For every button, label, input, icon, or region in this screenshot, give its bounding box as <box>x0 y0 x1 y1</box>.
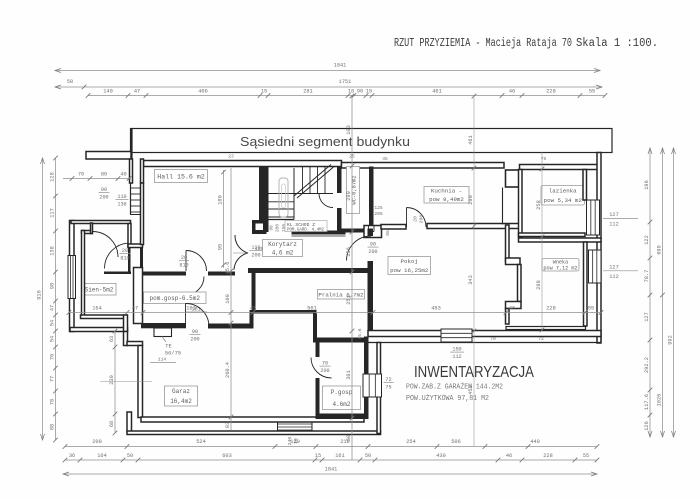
svg-text:45.6: 45.6 <box>225 262 231 275</box>
svg-text:127: 127 <box>644 312 650 322</box>
svg-text:916: 916 <box>37 290 43 300</box>
svg-text:1841: 1841 <box>334 63 347 69</box>
svg-text:699: 699 <box>657 245 663 255</box>
svg-text:55: 55 <box>583 453 589 459</box>
svg-text:18: 18 <box>348 89 354 95</box>
svg-text:810: 810 <box>179 262 188 268</box>
svg-text:75: 75 <box>541 156 547 162</box>
svg-text:78: 78 <box>50 399 56 405</box>
svg-text:343: 343 <box>468 275 474 285</box>
svg-text:15: 15 <box>366 89 372 95</box>
svg-text:127: 127 <box>609 212 619 218</box>
svg-text:506: 506 <box>451 439 461 445</box>
svg-text:Korytarz: Korytarz <box>268 241 297 248</box>
svg-text:164: 164 <box>97 453 107 459</box>
svg-text:430: 430 <box>436 453 446 459</box>
svg-text:pow 9,49m2: pow 9,49m2 <box>429 196 464 203</box>
svg-text:pow 7,12 m2: pow 7,12 m2 <box>543 266 577 272</box>
svg-text:228: 228 <box>546 306 556 312</box>
svg-text:90: 90 <box>101 187 107 193</box>
svg-text:46: 46 <box>509 89 515 95</box>
svg-text:15: 15 <box>315 453 321 459</box>
svg-text:461: 461 <box>432 89 442 95</box>
svg-text:78.7: 78.7 <box>644 270 650 283</box>
svg-text:Wneka: Wneka <box>553 260 569 266</box>
svg-text:WC-0,87m2: WC-0,87m2 <box>352 175 358 204</box>
svg-text:992: 992 <box>668 335 674 345</box>
svg-text:50: 50 <box>67 79 73 85</box>
svg-text:15: 15 <box>293 438 299 444</box>
svg-text:254: 254 <box>406 439 416 445</box>
svg-text:453: 453 <box>431 306 441 312</box>
svg-text:1026: 1026 <box>657 394 663 407</box>
svg-text:Pokoj: Pokoj <box>401 258 418 265</box>
svg-text:RZUT PRZYZIEMIA - Macieja Rata: RZUT PRZYZIEMIA - Macieja Rataja 70 <box>394 37 572 50</box>
svg-text:Kuchnia -: Kuchnia - <box>431 188 462 195</box>
svg-text:110: 110 <box>117 194 126 200</box>
svg-text:TE: TE <box>165 344 171 350</box>
svg-text:4,6 m2: 4,6 m2 <box>272 249 294 256</box>
svg-text:240: 240 <box>287 437 293 446</box>
svg-text:70: 70 <box>78 172 84 178</box>
svg-text:260.4: 260.4 <box>225 362 231 378</box>
svg-text:56/75: 56/75 <box>165 351 181 357</box>
svg-text:161: 161 <box>186 306 196 312</box>
svg-text:70: 70 <box>322 361 328 367</box>
svg-text:200: 200 <box>320 368 329 374</box>
svg-text:72: 72 <box>538 336 544 342</box>
svg-text:120: 120 <box>255 246 264 252</box>
svg-text:1841: 1841 <box>325 467 338 473</box>
svg-text:117.6: 117.6 <box>644 394 650 410</box>
svg-text:603: 603 <box>222 453 232 459</box>
svg-text:63: 63 <box>109 336 115 342</box>
svg-text:45: 45 <box>382 156 388 162</box>
svg-text:127: 127 <box>609 264 619 270</box>
svg-text:POW.UŻYTKOWA 97,81 M2: POW.UŻYTKOWA 97,81 M2 <box>406 394 489 403</box>
svg-text:Sien-5m2: Sien-5m2 <box>85 286 114 293</box>
svg-text:50: 50 <box>127 453 133 459</box>
svg-text:Pralnia 6,7m2: Pralnia 6,7m2 <box>318 291 364 298</box>
svg-text:72: 72 <box>385 377 391 383</box>
svg-text:POM.GARD. 4,4M2: POM.GARD. 4,4M2 <box>287 228 324 233</box>
svg-text:25: 25 <box>349 154 355 160</box>
svg-text:122: 122 <box>644 235 650 245</box>
svg-text:16,4m2: 16,4m2 <box>170 398 192 405</box>
svg-text:200: 200 <box>276 224 281 232</box>
svg-text:524: 524 <box>196 439 206 445</box>
svg-text:126: 126 <box>644 421 650 431</box>
svg-text:196: 196 <box>644 180 650 190</box>
svg-text:pom.gosp-6.5m2: pom.gosp-6.5m2 <box>150 295 201 302</box>
svg-text:258: 258 <box>536 200 542 210</box>
svg-text:46: 46 <box>506 453 512 459</box>
svg-text:20: 20 <box>122 248 128 254</box>
svg-text:112: 112 <box>452 354 461 360</box>
svg-text:43: 43 <box>250 306 256 312</box>
svg-text:45.6: 45.6 <box>357 328 363 339</box>
svg-text:46: 46 <box>509 306 515 312</box>
svg-text:88: 88 <box>50 424 56 430</box>
svg-text:200: 200 <box>92 439 102 445</box>
svg-text:90: 90 <box>270 225 275 231</box>
svg-text:68: 68 <box>109 421 115 427</box>
svg-text:85: 85 <box>385 230 391 236</box>
svg-text:200: 200 <box>368 249 377 255</box>
svg-text:23: 23 <box>228 154 234 160</box>
svg-text:205: 205 <box>374 211 383 217</box>
svg-text:100: 100 <box>225 294 231 304</box>
svg-text:54: 54 <box>50 320 56 326</box>
svg-text:20: 20 <box>413 216 419 222</box>
svg-text:440: 440 <box>530 439 540 445</box>
svg-text:1751: 1751 <box>339 79 352 85</box>
svg-text:156: 156 <box>346 247 352 257</box>
svg-text:164: 164 <box>92 306 102 312</box>
svg-text:200: 200 <box>251 252 260 258</box>
svg-text:4.6m2: 4.6m2 <box>332 401 350 408</box>
svg-text:Skala 1 :100.: Skala 1 :100. <box>576 37 658 50</box>
svg-text:47: 47 <box>50 305 56 311</box>
svg-text:161: 161 <box>335 453 345 459</box>
svg-text:128: 128 <box>50 172 56 182</box>
svg-text:136: 136 <box>117 201 126 207</box>
svg-text:112: 112 <box>609 222 619 228</box>
svg-text:93: 93 <box>225 422 231 428</box>
svg-text:200: 200 <box>419 215 425 224</box>
svg-text:292.2: 292.2 <box>644 357 650 373</box>
svg-text:301: 301 <box>346 370 352 380</box>
svg-text:406: 406 <box>198 89 208 95</box>
svg-text:Garaz: Garaz <box>172 388 190 395</box>
svg-text:55: 55 <box>589 89 595 95</box>
svg-text:138: 138 <box>50 246 56 256</box>
svg-text:54: 54 <box>50 336 56 342</box>
svg-text:298: 298 <box>536 280 542 290</box>
svg-text:200: 200 <box>190 336 199 342</box>
svg-text:pow 5,34 m2: pow 5,34 m2 <box>544 197 583 204</box>
svg-text:70: 70 <box>490 336 496 342</box>
svg-text:P.gosp: P.gosp <box>331 389 353 396</box>
svg-text:pow 16,25m2: pow 16,25m2 <box>390 267 429 274</box>
svg-text:95: 95 <box>218 244 224 250</box>
svg-text:36: 36 <box>69 453 75 459</box>
svg-text:47: 47 <box>132 306 138 312</box>
svg-text:POW.ZAB.Z GARAŻEM 144.2M2: POW.ZAB.Z GARAŻEM 144.2M2 <box>406 383 503 392</box>
svg-text:75: 75 <box>385 384 391 390</box>
svg-text:117: 117 <box>50 208 56 218</box>
svg-text:INWENTARYZACJA: INWENTARYZACJA <box>414 364 535 381</box>
svg-text:200: 200 <box>99 194 108 200</box>
svg-text:180: 180 <box>218 195 224 205</box>
svg-text:125: 125 <box>374 205 383 211</box>
svg-text:281: 281 <box>303 89 313 95</box>
svg-text:77: 77 <box>50 376 56 382</box>
svg-text:98: 98 <box>50 283 56 289</box>
svg-text:140: 140 <box>103 89 113 95</box>
svg-text:561: 561 <box>307 306 317 312</box>
svg-text:Sąsiedni segment budynku: Sąsiedni segment budynku <box>240 134 410 149</box>
svg-text:228: 228 <box>546 89 556 95</box>
svg-text:114: 114 <box>158 357 167 363</box>
svg-text:461: 461 <box>468 135 474 145</box>
svg-text:90: 90 <box>357 89 363 95</box>
svg-text:55: 55 <box>588 306 594 312</box>
svg-text:20: 20 <box>181 255 187 261</box>
svg-text:290: 290 <box>468 195 474 205</box>
svg-text:112: 112 <box>609 274 619 280</box>
svg-text:90: 90 <box>370 242 376 248</box>
svg-text:251: 251 <box>346 295 352 305</box>
svg-text:47: 47 <box>134 89 140 95</box>
svg-text:50: 50 <box>365 453 371 459</box>
svg-text:810: 810 <box>120 255 129 261</box>
svg-text:230: 230 <box>109 375 115 385</box>
svg-text:103: 103 <box>346 125 352 135</box>
svg-text:70: 70 <box>50 354 56 360</box>
svg-text:50: 50 <box>346 435 352 441</box>
svg-text:90: 90 <box>192 329 198 335</box>
svg-text:290: 290 <box>346 191 352 201</box>
svg-text:15: 15 <box>261 89 267 95</box>
svg-text:228: 228 <box>543 453 553 459</box>
svg-text:150: 150 <box>452 347 461 353</box>
svg-text:Hall 15.6 m2: Hall 15.6 m2 <box>157 173 205 180</box>
svg-text:40: 40 <box>120 172 126 178</box>
svg-text:lazienka: lazienka <box>549 188 577 195</box>
svg-text:80: 80 <box>101 172 107 178</box>
